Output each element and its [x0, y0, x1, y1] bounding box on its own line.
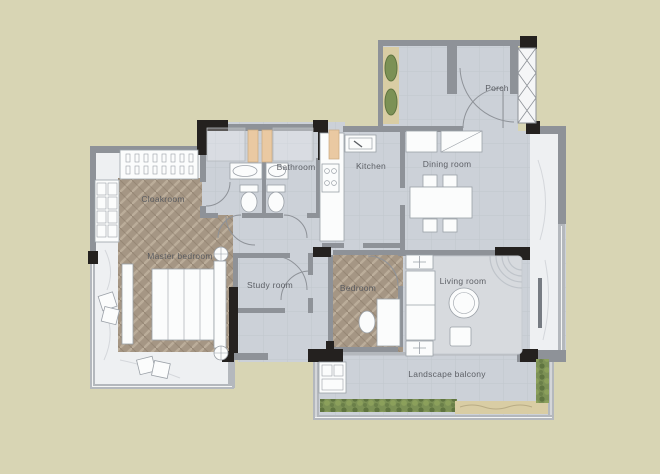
room-label-living-room: Living room: [440, 276, 487, 286]
room-label-cloakroom: Cloakroom: [141, 194, 184, 204]
toilet-left: [240, 185, 258, 212]
sink-left: [233, 166, 257, 177]
balcony-hedge: [320, 399, 457, 412]
shower-door-right: [262, 130, 272, 162]
headboard: [214, 261, 226, 348]
shower-door-left: [248, 130, 258, 162]
kitchen-door-panel: [329, 130, 339, 159]
master-console: [122, 264, 133, 344]
room-label-study-room: Study room: [247, 280, 293, 290]
shower-left: [207, 128, 245, 161]
wardrobe: [120, 150, 198, 179]
dining-chair: [423, 175, 437, 187]
room-label-bathroom: Bathroom: [277, 162, 316, 172]
dining-chair: [443, 219, 457, 232]
room-label-bedroom: Bedroom: [340, 283, 376, 293]
drawer-cabinet: [95, 180, 119, 242]
toilet-right: [267, 185, 285, 212]
room-label-dining-room: Dining room: [423, 159, 472, 169]
nightstand-plant: [214, 346, 228, 360]
nightstand-plant: [214, 247, 228, 261]
dining-chair: [423, 219, 437, 232]
master-bed: [152, 269, 214, 340]
washing-machine: [319, 362, 346, 393]
porch-lattice-window: [518, 48, 536, 123]
bedroom-desk: [377, 299, 400, 346]
balcony-sand-strip: [455, 401, 548, 414]
marble-walkway: [530, 133, 558, 352]
room-label-landscape-balcony: Landscape balcony: [408, 369, 486, 379]
room-label-master-bedroom: Master bedroom: [147, 251, 212, 261]
living-furniture: [405, 255, 542, 356]
floor-plan-image: PorchBathroomKitchenDining roomCloakroom…: [0, 0, 660, 474]
stool: [450, 327, 471, 346]
dining-chair: [443, 175, 457, 187]
dining-table: [410, 187, 472, 218]
tv: [538, 278, 542, 328]
bedroom-chair: [359, 311, 375, 333]
room-label-kitchen: Kitchen: [356, 161, 386, 171]
stove: [322, 164, 339, 192]
shower-right: [273, 128, 313, 161]
kitchen-sink: [345, 135, 376, 152]
entry-cabinet: [406, 131, 437, 152]
room-label-porch: Porch: [485, 83, 508, 93]
floor-plan-svg: PorchBathroomKitchenDining roomCloakroom…: [0, 0, 660, 474]
balcony-side-hedge: [536, 359, 549, 403]
